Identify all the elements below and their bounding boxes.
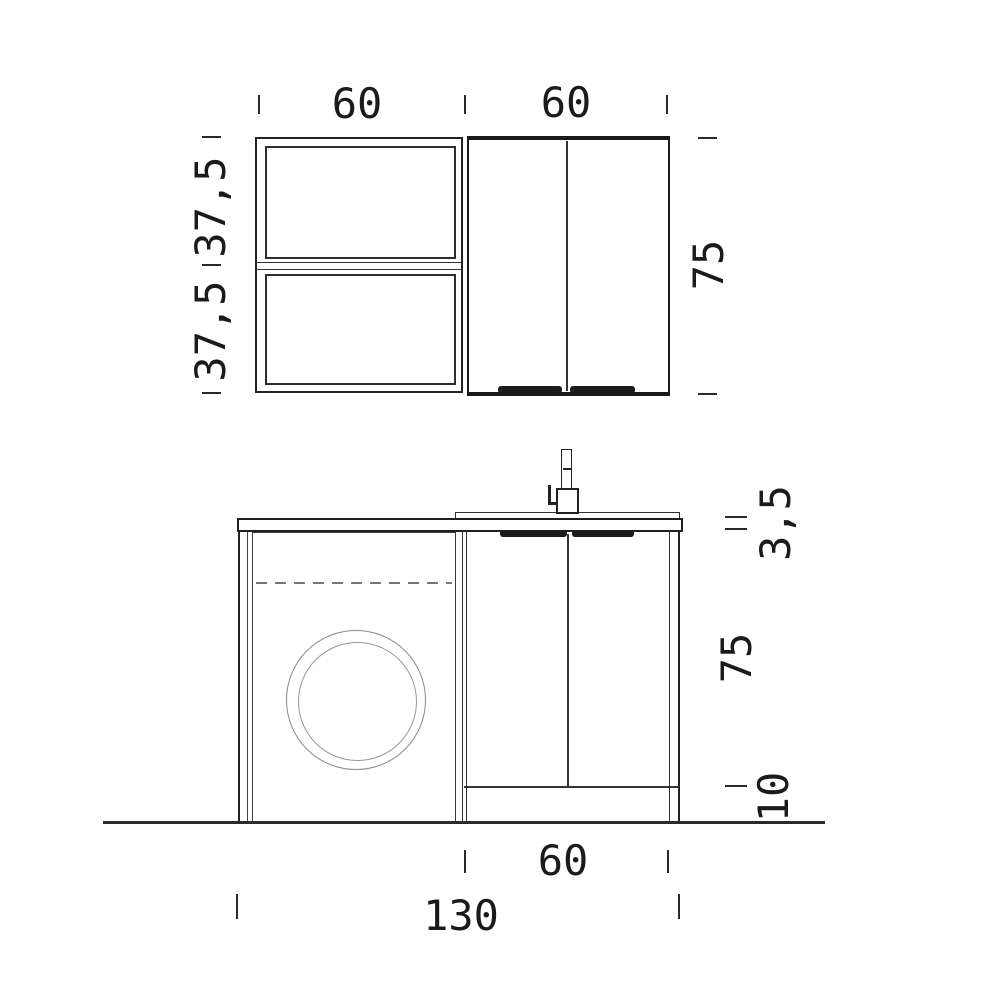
sink-cabinet-left-handle — [500, 531, 567, 537]
faucet-body — [556, 488, 579, 514]
dim-label-base-cabinet-height: 75 — [716, 633, 758, 684]
sink-cabinet-right-panel — [669, 532, 680, 822]
dim-label-lower-shelf-height: 37,5 — [190, 280, 232, 381]
wall-cabinet-right-handle — [570, 386, 635, 392]
sink-cabinet-door-divider — [567, 534, 569, 786]
dim-tick — [725, 516, 747, 518]
dim-tick — [698, 393, 717, 395]
dim-tick — [202, 136, 221, 138]
open-shelf-upper-opening — [265, 146, 456, 259]
dim-tick — [666, 95, 668, 114]
dim-tick — [202, 392, 221, 394]
dim-label-upper-shelf-height: 37,5 — [190, 156, 232, 257]
dim-tick — [464, 95, 466, 114]
floor-line — [103, 821, 825, 824]
dim-tick — [464, 850, 466, 873]
left-side-panel — [238, 532, 248, 822]
faucet-spout-joint — [563, 468, 571, 470]
dim-tick — [202, 264, 221, 266]
dim-tick — [725, 528, 747, 530]
wall-cabinet-outline — [467, 136, 670, 396]
dim-label-sink-unit-width: 60 — [538, 840, 589, 882]
dim-tick — [678, 894, 680, 919]
dim-label-total-width: 130 — [423, 895, 499, 937]
dim-label-countertop-thickness: 3,5 — [755, 485, 797, 561]
countertop — [237, 518, 683, 532]
open-shelf-middle-shelf — [256, 262, 462, 270]
wall-cabinet-left-handle — [498, 386, 562, 392]
sink-cabinet-left-panel — [462, 532, 467, 822]
dim-tick — [698, 137, 717, 139]
dim-label-wall-cabinet-height: 75 — [688, 240, 730, 291]
faucet-lever-base — [548, 502, 557, 505]
wall-cabinet-door-divider — [566, 141, 568, 391]
dim-label-plinth-height: 10 — [753, 772, 795, 823]
open-shelf-lower-opening — [265, 274, 456, 385]
dim-tick — [236, 894, 238, 919]
washing-machine-door-inner-circle — [298, 642, 417, 761]
sink-cabinet-doors-bottom-edge — [464, 786, 678, 788]
dim-label-shelf-unit-width: 60 — [332, 83, 383, 125]
washing-machine-top-dashed-line — [256, 582, 452, 584]
dim-label-wall-cabinet-width: 60 — [541, 82, 592, 124]
dim-tick — [667, 850, 669, 873]
dim-tick — [725, 785, 747, 787]
sink-cabinet-right-handle — [572, 531, 634, 537]
technical-drawing-canvas: 60 60 37,5 37,5 75 — [0, 0, 1000, 997]
dim-tick — [258, 95, 260, 114]
